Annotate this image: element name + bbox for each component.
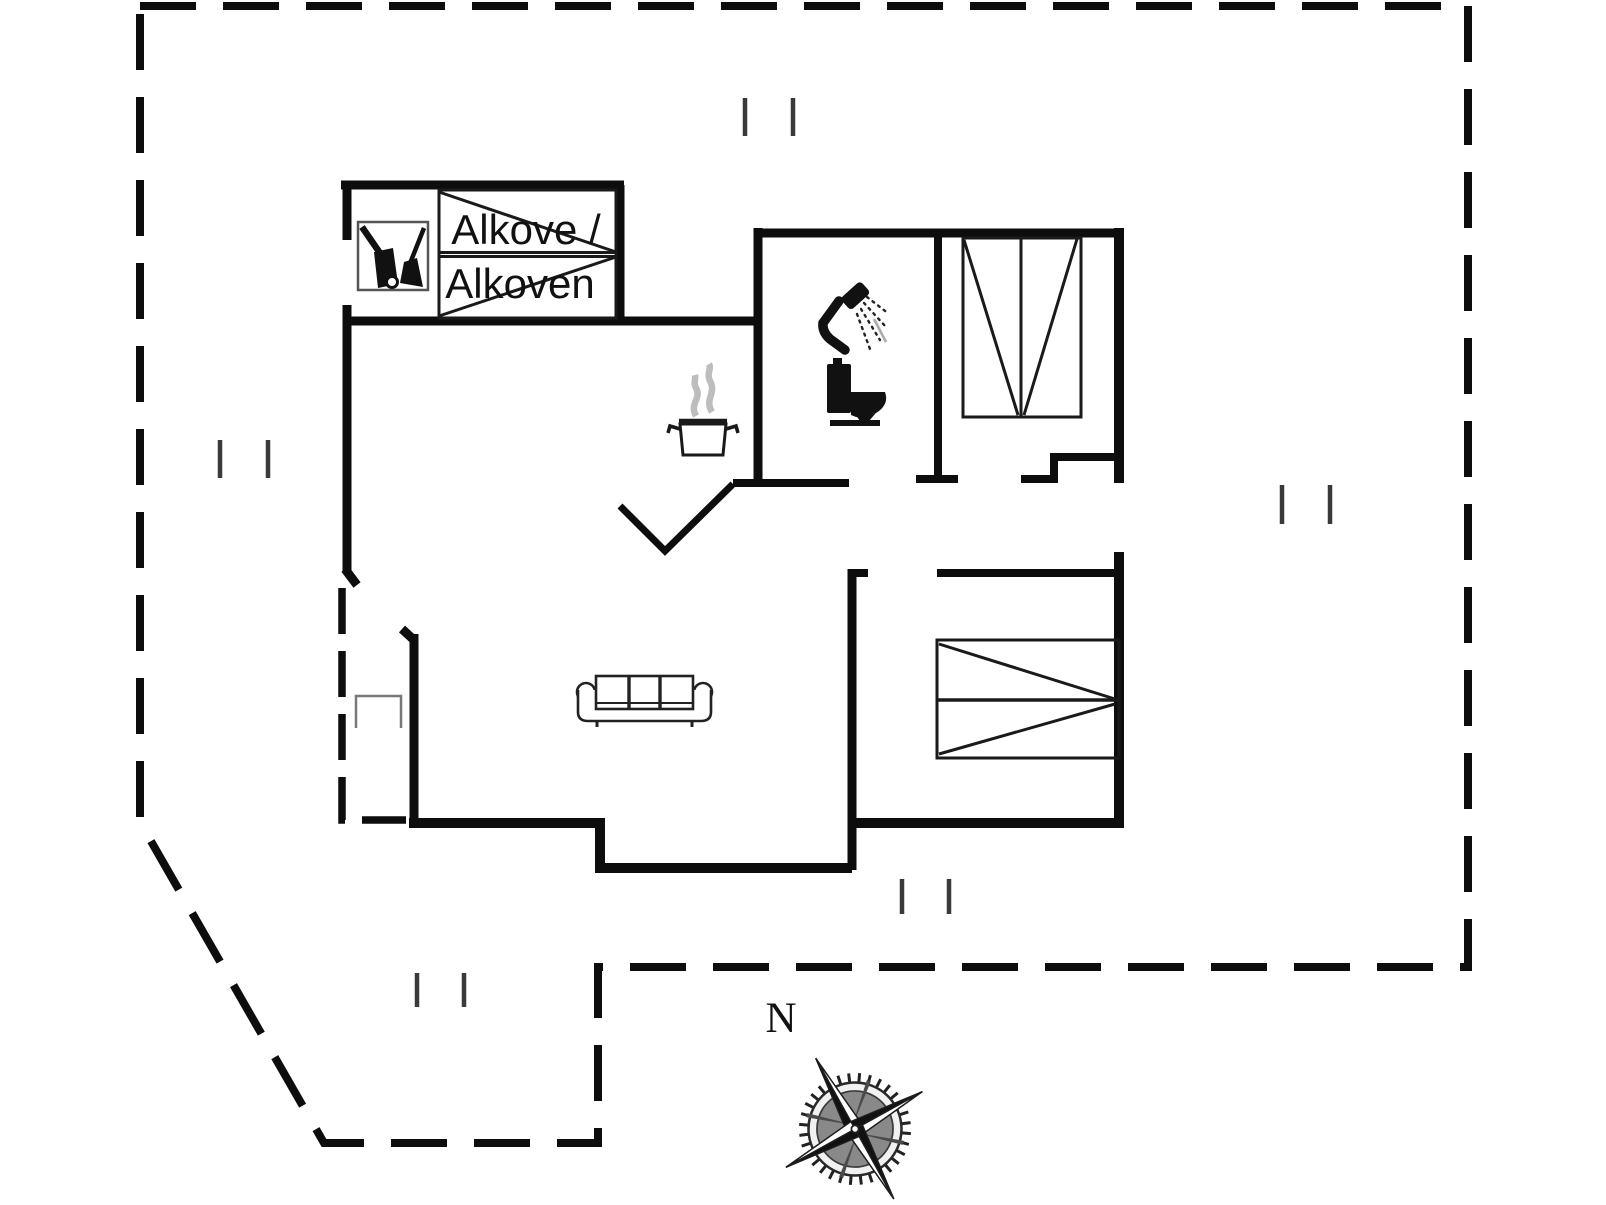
- svg-text:Alkove /: Alkove /: [451, 206, 601, 253]
- svg-text:Alkoven: Alkoven: [445, 260, 594, 307]
- svg-text:N: N: [765, 995, 796, 1042]
